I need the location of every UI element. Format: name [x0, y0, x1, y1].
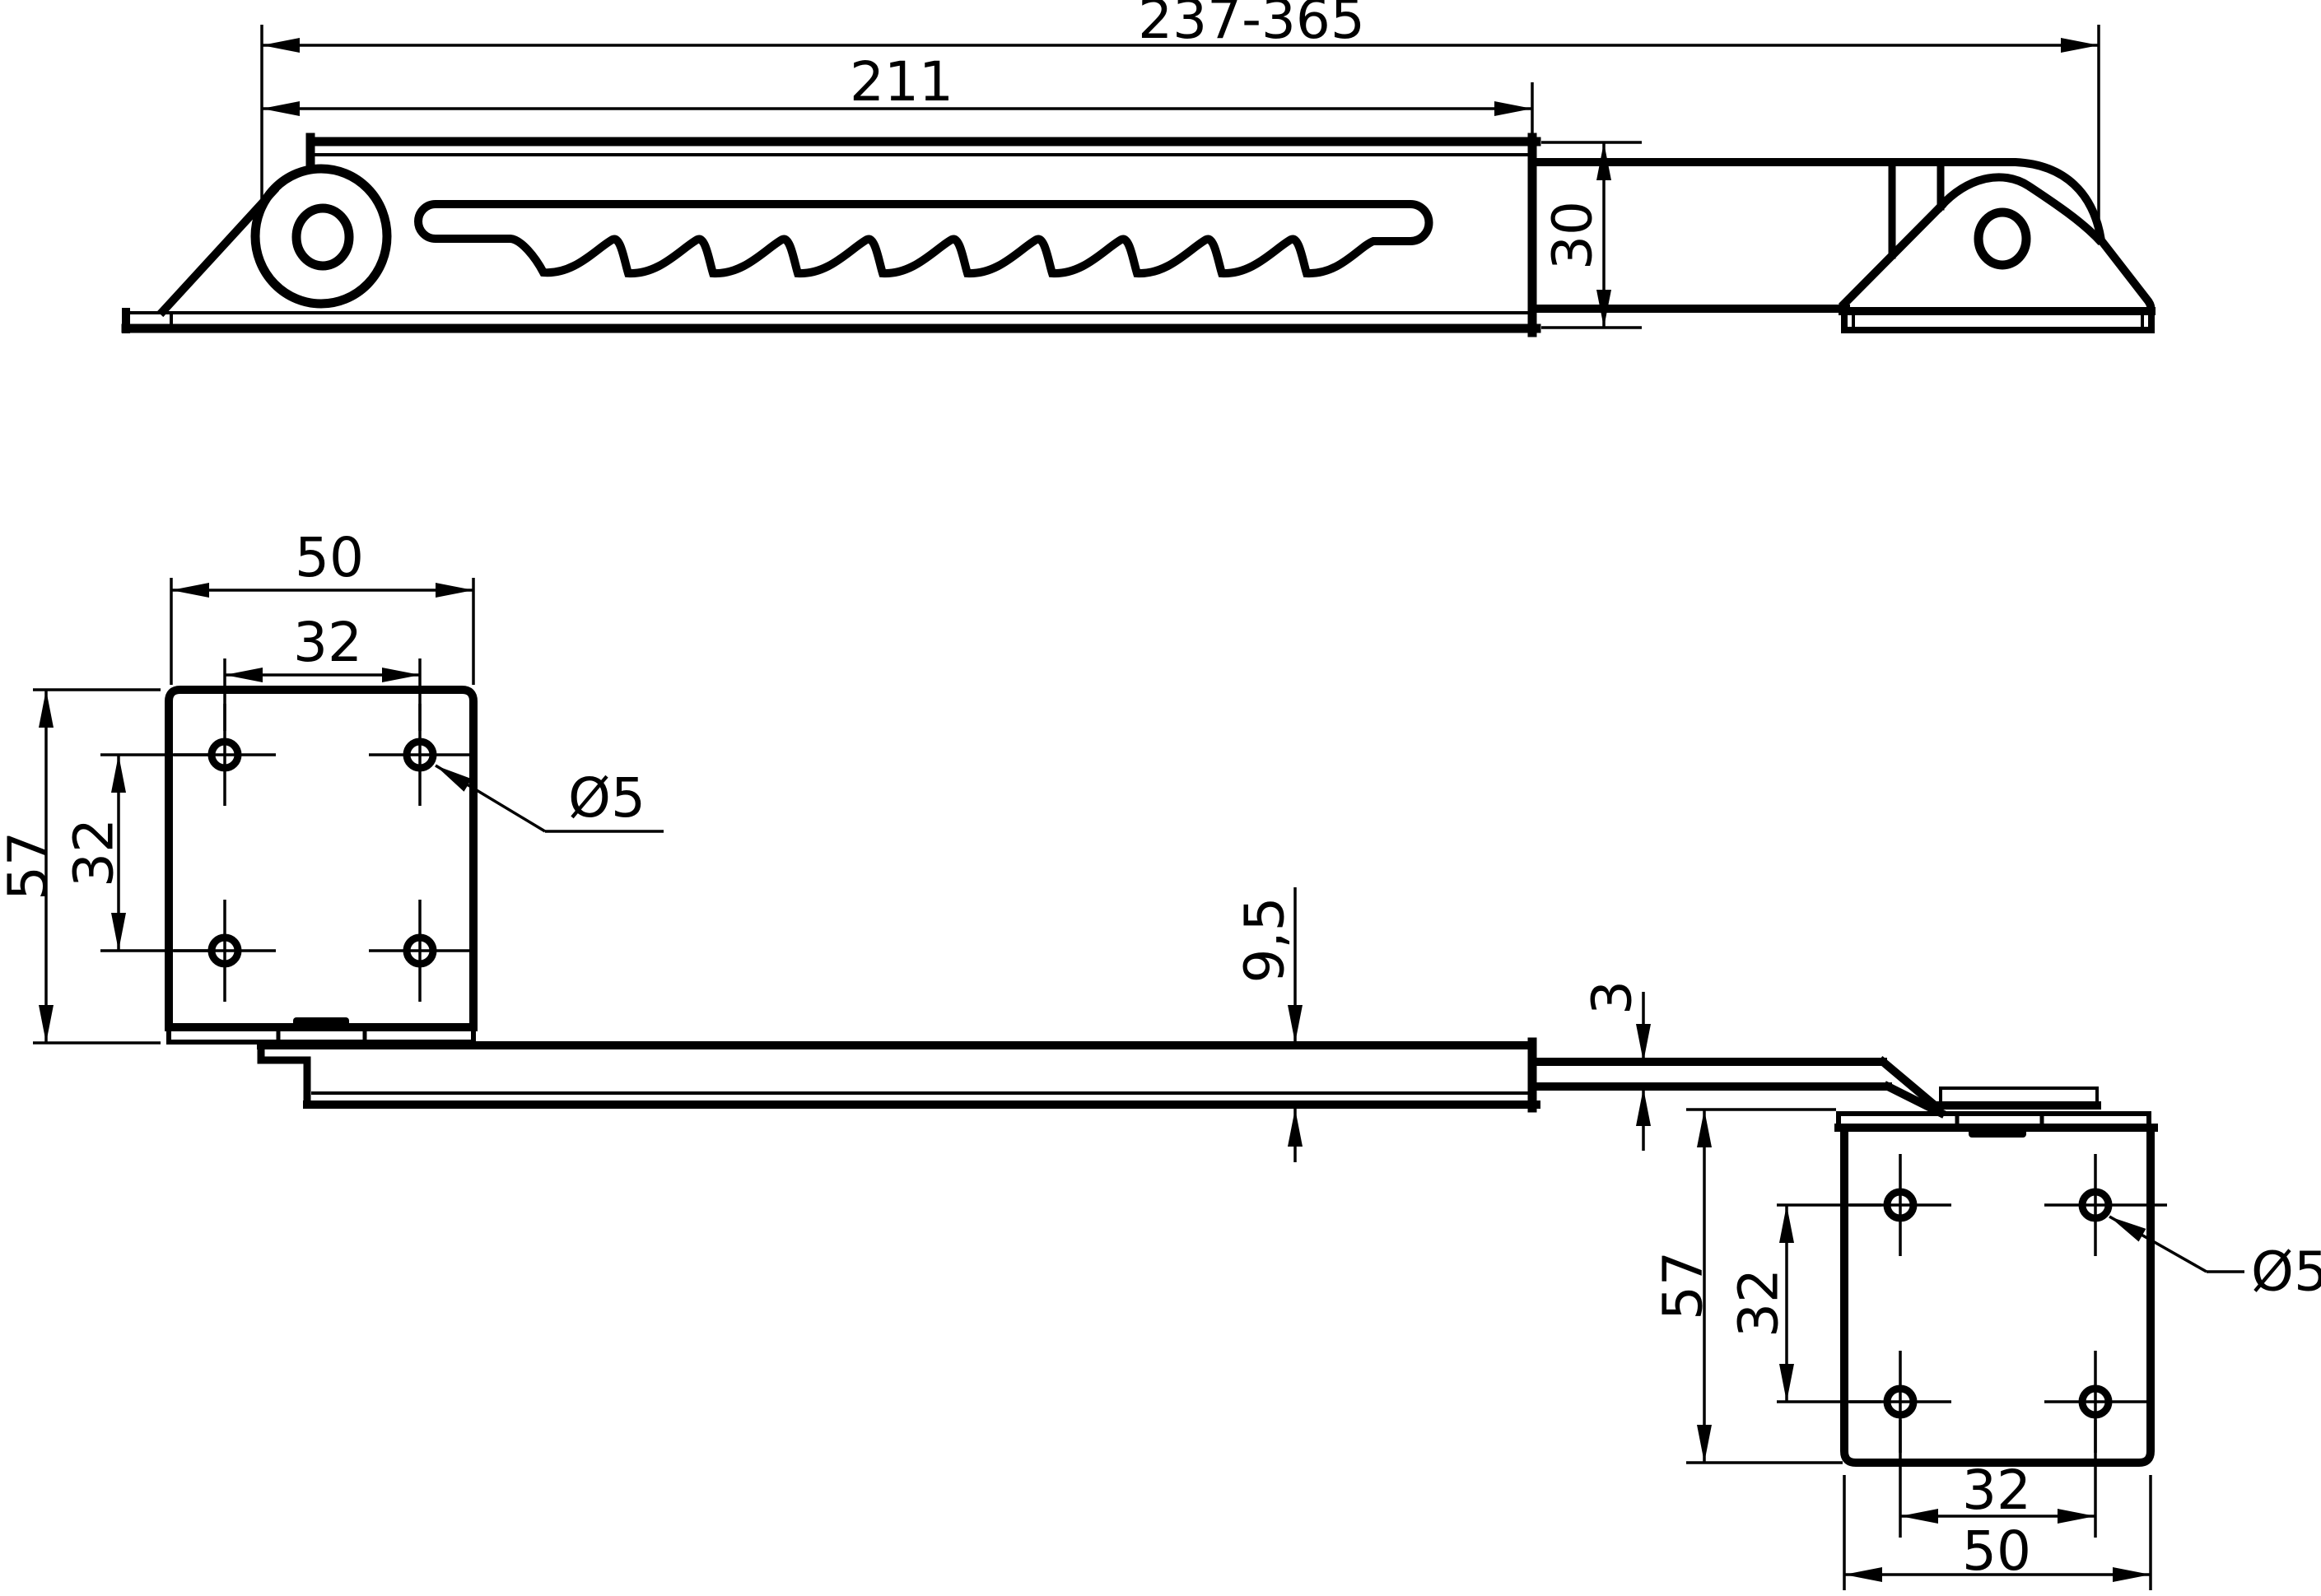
dim-rail-length-label: 211: [850, 50, 953, 114]
pivot-boss: [255, 169, 387, 304]
left-pivot-bracket: [163, 169, 387, 311]
left-mounting-plate: [169, 690, 473, 1042]
pivot-hole: [296, 208, 349, 266]
dim-rail-length: 211: [262, 50, 1532, 133]
dim-left-holes-horizontal-label: 32: [293, 611, 362, 674]
right-bracket-hole: [1978, 212, 2026, 265]
locating-tab: [1969, 1126, 2026, 1138]
slider-top-edge: [1536, 162, 2151, 311]
dim-right-hole-diameter-label: Ø5: [2251, 1240, 2321, 1304]
technical-drawing: 237-365 211 30: [0, 0, 2321, 1596]
locating-tab: [293, 1017, 349, 1029]
arm-side-view: [261, 1042, 1536, 1108]
dim-right-holes-vertical: 32: [1727, 1205, 1882, 1402]
dim-left-plate-width-label: 50: [295, 526, 364, 589]
dim-rail-thickness-label: 9,5: [1233, 897, 1297, 984]
slider-bar: [1536, 162, 2151, 311]
dim-left-holes-vertical-label: 32: [63, 818, 126, 887]
dim-right-hole-diameter: Ø5: [2109, 1217, 2321, 1304]
arm-left-step: [261, 1045, 307, 1105]
front-view: 50 32 57 32: [0, 526, 2321, 1590]
right-mounting-plate: [1839, 1114, 2167, 1463]
screw-hole: [369, 900, 471, 1002]
slider-side-view: [1536, 1062, 2097, 1113]
dim-right-plate-height-label: 57: [1652, 1251, 1715, 1320]
top-view: 237-365 211 30: [126, 0, 2151, 333]
dim-right-holes-vertical-label: 32: [1727, 1268, 1791, 1338]
dim-left-holes-horizontal: 32: [225, 611, 420, 731]
dim-left-plate-height-label: 57: [0, 831, 60, 900]
dim-left-hole-diameter-label: Ø5: [568, 766, 645, 830]
dim-rail-width-label: 30: [1541, 201, 1605, 270]
dim-overall-length: 237-365: [262, 0, 2099, 235]
dim-rail-width: 30: [1541, 142, 1643, 328]
dim-overall-length-label: 237-365: [1138, 0, 1365, 51]
serrated-adjustment-slot: [418, 204, 1429, 273]
dim-strap-thickness-label: 3: [1581, 980, 1644, 1015]
dim-right-holes-horizontal-label: 32: [1962, 1459, 2031, 1522]
dim-right-plate-width-label: 50: [1962, 1519, 2031, 1583]
dim-rail-thickness: 9,5: [1233, 887, 1303, 1162]
dim-left-holes-vertical: 32: [63, 755, 210, 951]
